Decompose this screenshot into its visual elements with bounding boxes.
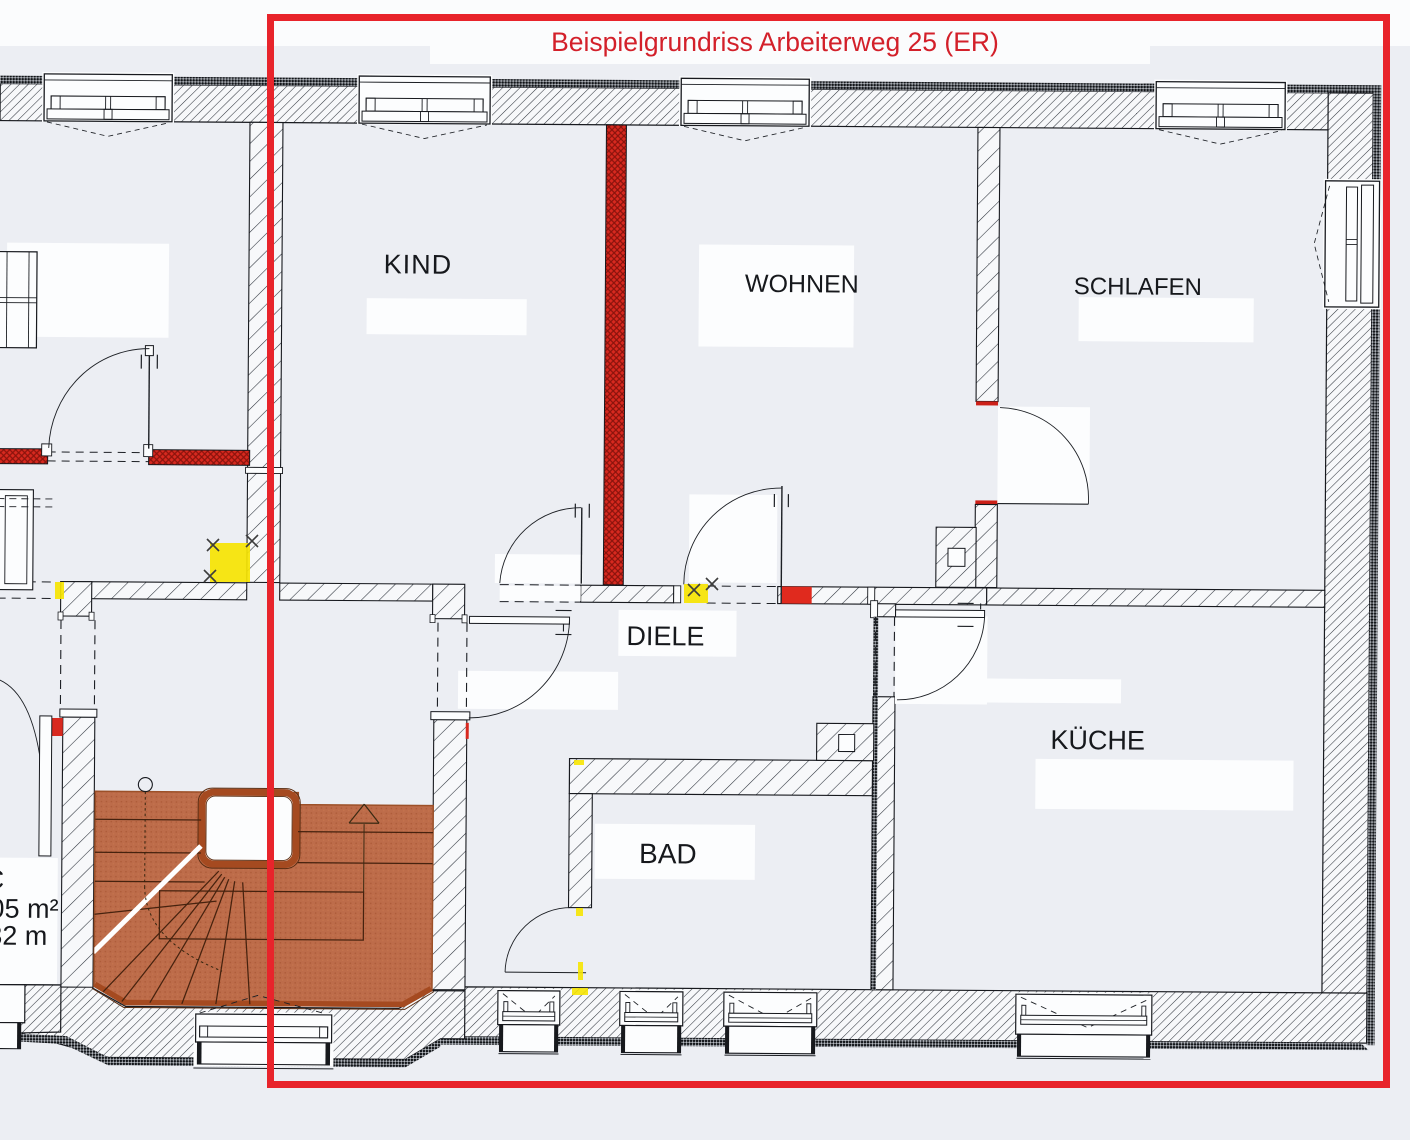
svg-text:WOHNEN: WOHNEN (745, 270, 859, 299)
svg-text:KIND: KIND (384, 249, 453, 279)
svg-text:DIELE: DIELE (626, 621, 704, 652)
svg-text:KÜCHE: KÜCHE (1050, 725, 1145, 756)
svg-text:32 m: 32 m (0, 921, 47, 951)
svg-text:SCHLAFEN: SCHLAFEN (1074, 273, 1202, 301)
svg-text:C: C (0, 864, 4, 894)
svg-text:BAD: BAD (639, 838, 697, 869)
svg-text:05 m²: 05 m² (0, 894, 59, 924)
svg-text:Beispielgrundriss Arbeiterweg: Beispielgrundriss Arbeiterweg 25 (ER) (551, 27, 999, 57)
